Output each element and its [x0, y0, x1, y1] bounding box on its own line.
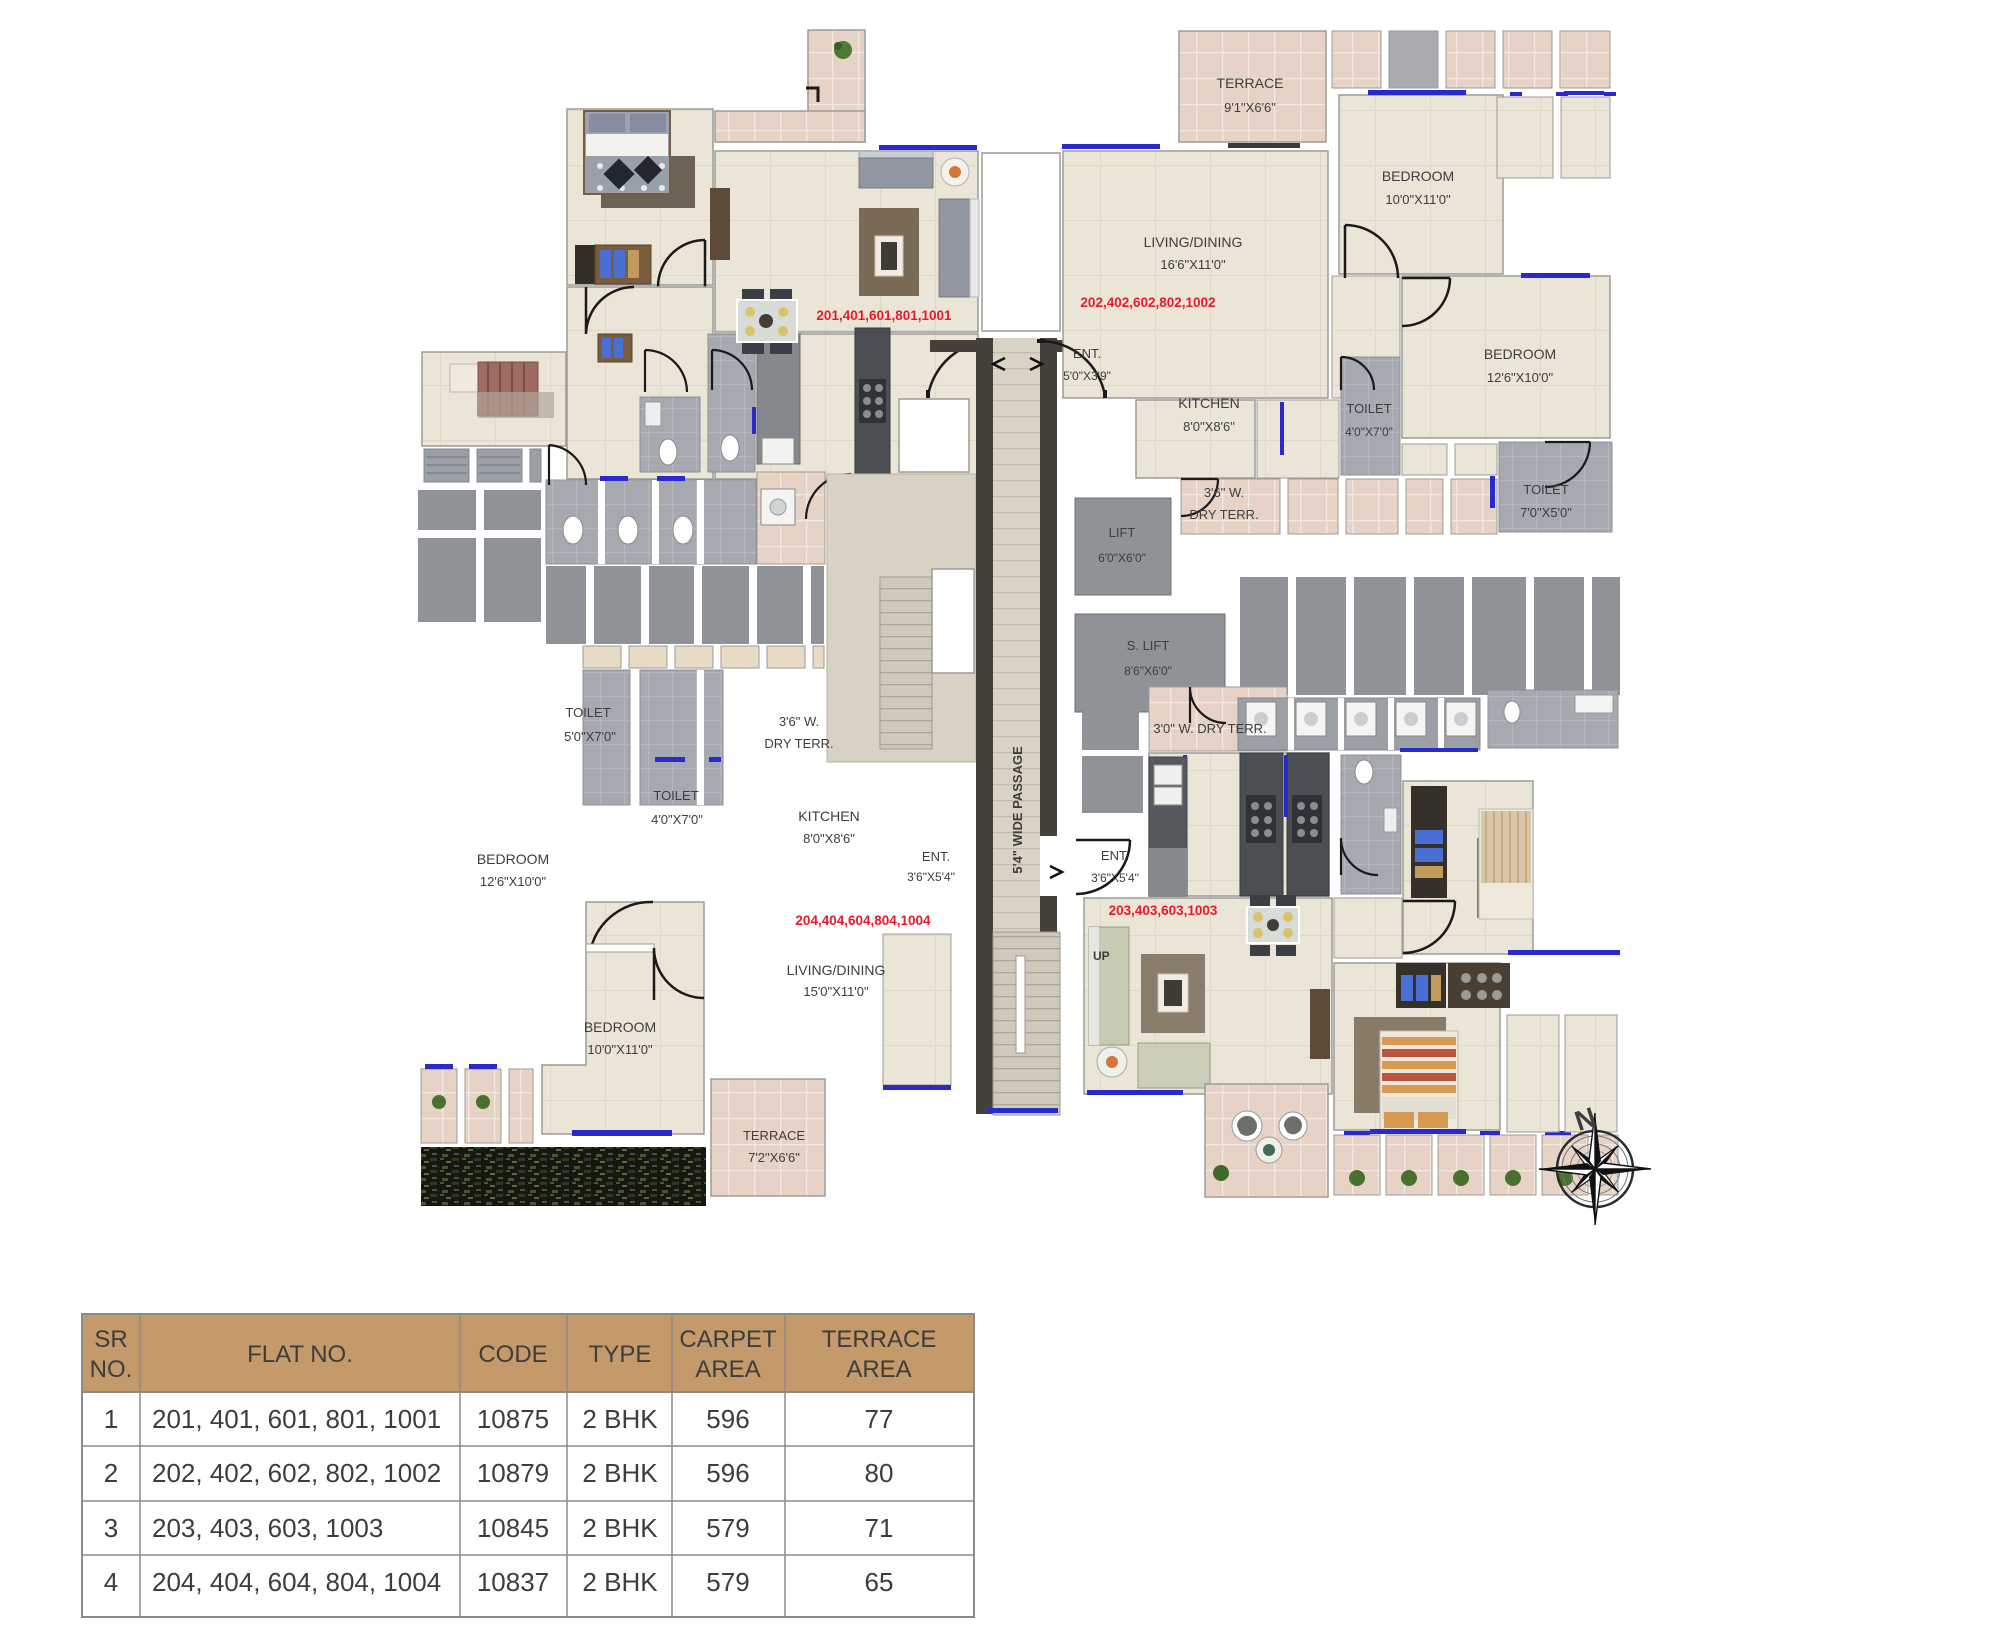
svg-text:10875: 10875 [477, 1404, 549, 1434]
svg-text:204,404,604,804,1004: 204,404,604,804,1004 [795, 913, 931, 928]
svg-text:LIFT: LIFT [1109, 525, 1136, 540]
svg-text:203,403,603,1003: 203,403,603,1003 [1109, 903, 1218, 918]
svg-text:TERRACE: TERRACE [822, 1326, 937, 1353]
svg-text:ENT.: ENT. [922, 849, 950, 864]
svg-text:DRY TERR.: DRY TERR. [1189, 507, 1258, 522]
svg-text:16'6"X11'0": 16'6"X11'0" [1160, 257, 1226, 272]
svg-text:80: 80 [865, 1458, 894, 1488]
svg-text:579: 579 [706, 1567, 749, 1597]
svg-text:12'6"X10'0": 12'6"X10'0" [480, 874, 547, 889]
svg-text:2 BHK: 2 BHK [582, 1458, 658, 1488]
svg-text:10837: 10837 [477, 1567, 549, 1597]
svg-text:KITCHEN: KITCHEN [798, 808, 859, 824]
svg-text:203, 403, 603, 1003: 203, 403, 603, 1003 [152, 1513, 383, 1543]
svg-text:10'0"X11'0": 10'0"X11'0" [1385, 192, 1451, 207]
svg-text:204, 404, 604, 804, 1004: 204, 404, 604, 804, 1004 [152, 1567, 441, 1597]
svg-text:TOILET: TOILET [653, 788, 698, 803]
svg-text:596: 596 [706, 1404, 749, 1434]
svg-text:7'0"X5'0": 7'0"X5'0" [1520, 505, 1572, 520]
svg-text:LIVING/DINING: LIVING/DINING [787, 962, 886, 978]
svg-text:3'6" W.: 3'6" W. [779, 714, 819, 729]
svg-text:TERRACE: TERRACE [1217, 75, 1284, 91]
svg-text:NO.: NO. [90, 1356, 133, 1383]
svg-text:3'6"X5'4": 3'6"X5'4" [907, 870, 955, 884]
svg-text:202, 402, 602, 802, 1002: 202, 402, 602, 802, 1002 [152, 1458, 441, 1488]
svg-text:S. LIFT: S. LIFT [1127, 638, 1170, 653]
svg-text:77: 77 [865, 1404, 894, 1434]
svg-text:BEDROOM: BEDROOM [477, 851, 549, 867]
svg-text:DRY TERR.: DRY TERR. [764, 736, 833, 751]
svg-text:3'6" W.: 3'6" W. [1204, 485, 1244, 500]
svg-text:8'0"X8'6": 8'0"X8'6" [1183, 419, 1235, 434]
svg-text:7'2"X6'6": 7'2"X6'6" [748, 1150, 800, 1165]
svg-text:CODE: CODE [478, 1341, 547, 1368]
svg-text:4'0"X7'0": 4'0"X7'0" [651, 812, 703, 827]
svg-text:TOILET: TOILET [565, 705, 610, 720]
svg-text:8'6"X6'0": 8'6"X6'0" [1124, 664, 1172, 678]
svg-text:KITCHEN: KITCHEN [1178, 395, 1239, 411]
svg-text:UP: UP [1093, 949, 1110, 963]
svg-text:ENT.: ENT. [1073, 346, 1101, 361]
svg-text:4'0"X7'0": 4'0"X7'0" [1345, 425, 1393, 439]
svg-text:3: 3 [104, 1513, 118, 1543]
svg-text:TERRACE: TERRACE [743, 1128, 805, 1143]
svg-text:SR: SR [94, 1326, 127, 1353]
svg-text:12'6"X10'0": 12'6"X10'0" [1487, 370, 1554, 385]
svg-text:AREA: AREA [846, 1356, 911, 1383]
svg-text:201,401,601,801,1001: 201,401,601,801,1001 [816, 308, 952, 323]
svg-text:10845: 10845 [477, 1513, 549, 1543]
svg-text:8'0"X8'6": 8'0"X8'6" [803, 831, 855, 846]
svg-text:15'0"X11'0": 15'0"X11'0" [803, 984, 869, 999]
svg-text:5'0"X7'0": 5'0"X7'0" [564, 729, 616, 744]
svg-text:596: 596 [706, 1458, 749, 1488]
svg-text:5'0"X3'9": 5'0"X3'9" [1063, 369, 1111, 383]
svg-text:FLAT NO.: FLAT NO. [247, 1341, 353, 1368]
svg-text:2: 2 [104, 1458, 118, 1488]
svg-text:65: 65 [865, 1567, 894, 1597]
svg-text:71: 71 [865, 1513, 894, 1543]
svg-text:9'1"X6'6": 9'1"X6'6" [1224, 100, 1276, 115]
svg-text:201, 401, 601, 801, 1001: 201, 401, 601, 801, 1001 [152, 1404, 441, 1434]
svg-text:2 BHK: 2 BHK [582, 1567, 658, 1597]
svg-text:TYPE: TYPE [589, 1341, 652, 1368]
svg-text:1: 1 [104, 1404, 118, 1434]
svg-text:CARPET: CARPET [679, 1326, 777, 1353]
svg-text:10'0"X11'0": 10'0"X11'0" [587, 1042, 653, 1057]
svg-text:6'0"X6'0": 6'0"X6'0" [1098, 551, 1146, 565]
svg-text:4: 4 [104, 1567, 118, 1597]
svg-text:3'0" W. DRY TERR.: 3'0" W. DRY TERR. [1153, 721, 1266, 736]
svg-text:LIVING/DINING: LIVING/DINING [1144, 234, 1243, 250]
svg-text:579: 579 [706, 1513, 749, 1543]
svg-text:5'4" WIDE PASSAGE: 5'4" WIDE PASSAGE [1010, 746, 1025, 874]
svg-text:BEDROOM: BEDROOM [1484, 346, 1556, 362]
svg-text:AREA: AREA [695, 1356, 760, 1383]
svg-text:2 BHK: 2 BHK [582, 1404, 658, 1434]
svg-text:10879: 10879 [477, 1458, 549, 1488]
svg-text:TOILET: TOILET [1523, 482, 1568, 497]
svg-text:BEDROOM: BEDROOM [584, 1019, 656, 1035]
svg-text:2 BHK: 2 BHK [582, 1513, 658, 1543]
svg-text:BEDROOM: BEDROOM [1382, 168, 1454, 184]
svg-text:202,402,602,802,1002: 202,402,602,802,1002 [1080, 295, 1215, 310]
svg-text:TOILET: TOILET [1346, 401, 1391, 416]
